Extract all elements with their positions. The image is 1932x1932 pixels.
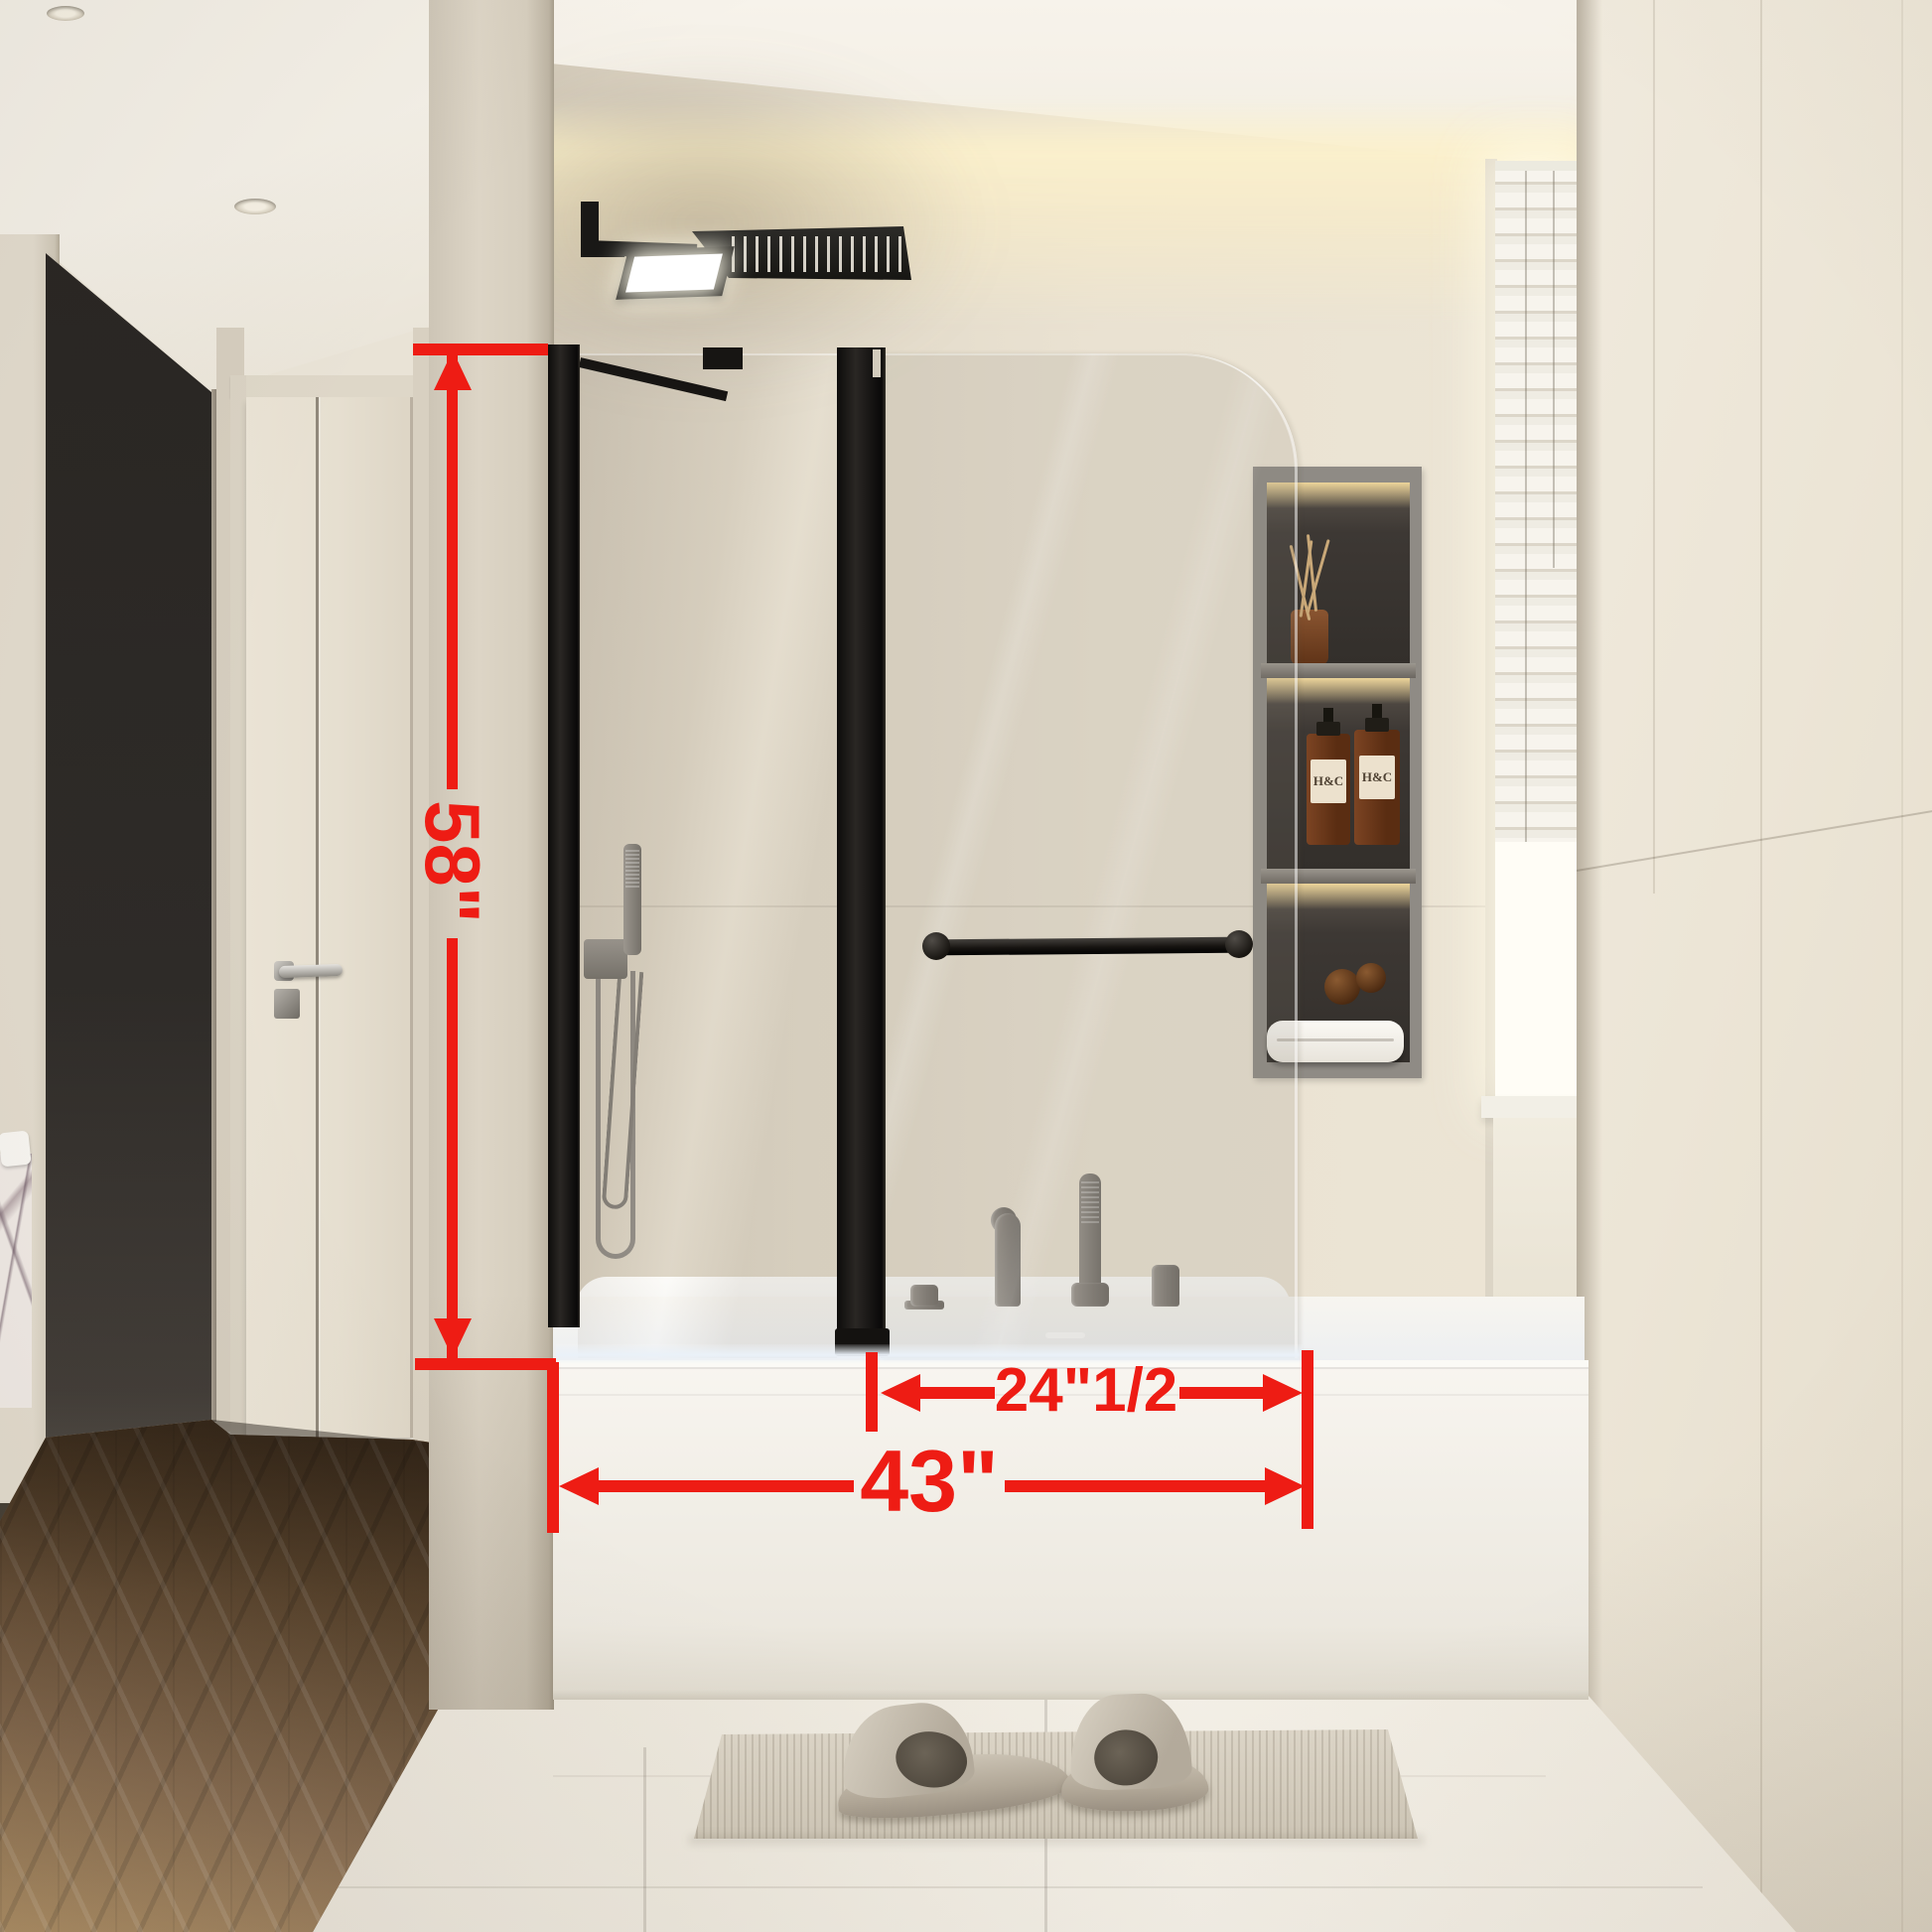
product-dimension-image: H&C H&C bbox=[0, 0, 1932, 1932]
dim-43-line-left bbox=[594, 1480, 854, 1492]
pivot-glass-door bbox=[881, 353, 1298, 1358]
dim-height-label: 58" bbox=[414, 800, 491, 923]
shower-nozzle-slats bbox=[723, 236, 903, 272]
pump-cap bbox=[1365, 718, 1389, 732]
window bbox=[1495, 161, 1577, 1104]
towel-bar bbox=[923, 937, 1251, 956]
door-frame-top bbox=[230, 375, 425, 397]
dim-58-line-upper bbox=[447, 355, 458, 789]
dim-58-arrow-down-icon bbox=[434, 1318, 472, 1361]
dim-panel-width-label: 24"1/2 bbox=[995, 1360, 1178, 1422]
dim-24-arrow-right-icon bbox=[1263, 1374, 1306, 1412]
shower-head-light bbox=[625, 254, 723, 293]
pump-cap bbox=[1316, 722, 1340, 736]
dark-accent-wall bbox=[46, 253, 211, 1438]
door-gap bbox=[316, 397, 319, 1438]
dim-58-line-lower bbox=[447, 938, 458, 1358]
pivot-hinge-frame bbox=[837, 347, 886, 1354]
dim-24-arrow-left-icon bbox=[878, 1374, 920, 1412]
mat-shadow bbox=[689, 1835, 1424, 1845]
door-lock bbox=[274, 989, 300, 1019]
towel-bar-cap bbox=[1225, 930, 1253, 958]
bottle-label: H&C bbox=[1359, 756, 1395, 799]
door-frame-left bbox=[230, 375, 246, 1440]
wall-below-window bbox=[1493, 1118, 1577, 1303]
towel-bar-cap bbox=[922, 932, 950, 960]
venetian-blinds bbox=[1495, 167, 1577, 842]
dim-58-bottom-tick bbox=[415, 1358, 556, 1370]
blinds-headrail bbox=[1495, 161, 1577, 171]
soap-bottle: H&C bbox=[1307, 734, 1350, 845]
right-wall-panels bbox=[1577, 0, 1932, 1932]
panel-seam bbox=[1653, 0, 1655, 894]
marble-slab bbox=[0, 1154, 32, 1408]
led-shower-head bbox=[616, 246, 735, 300]
pinecone bbox=[1324, 969, 1360, 1005]
dim-43-line-right bbox=[1005, 1480, 1268, 1492]
glass-bottom-seal bbox=[556, 1344, 1303, 1364]
bottle-label: H&C bbox=[1311, 759, 1346, 803]
dim-right-shared-tick bbox=[1302, 1350, 1313, 1529]
blinds-wand bbox=[1553, 171, 1555, 568]
pinecone bbox=[1356, 963, 1386, 993]
hallway-door bbox=[246, 397, 413, 1438]
door-handle bbox=[279, 964, 343, 978]
window-sill bbox=[1481, 1096, 1585, 1118]
dim-total-width-label: 43" bbox=[860, 1438, 999, 1525]
dim-43-left-tick bbox=[547, 1362, 559, 1533]
wall-profile-frame bbox=[548, 345, 580, 1327]
folded-linen bbox=[0, 1131, 32, 1168]
dim-43-arrow-left-icon bbox=[556, 1467, 599, 1505]
soap-bottle: H&C bbox=[1354, 730, 1400, 845]
dim-24-line-left bbox=[911, 1387, 995, 1399]
dim-24-left-tick bbox=[866, 1352, 878, 1432]
dim-24-line-right bbox=[1179, 1387, 1267, 1399]
slipper-right bbox=[1056, 1691, 1219, 1814]
glass-edge-glint bbox=[873, 349, 881, 377]
panel-seam bbox=[1577, 809, 1932, 872]
dim-58-arrow-up-icon bbox=[434, 347, 472, 390]
glass-support-clamp bbox=[703, 347, 743, 369]
recessed-light bbox=[47, 6, 84, 21]
blinds-cord bbox=[1525, 171, 1527, 842]
recessed-light bbox=[234, 199, 276, 214]
fixed-glass-panel bbox=[578, 353, 837, 1358]
floor-seam bbox=[313, 1886, 1703, 1888]
